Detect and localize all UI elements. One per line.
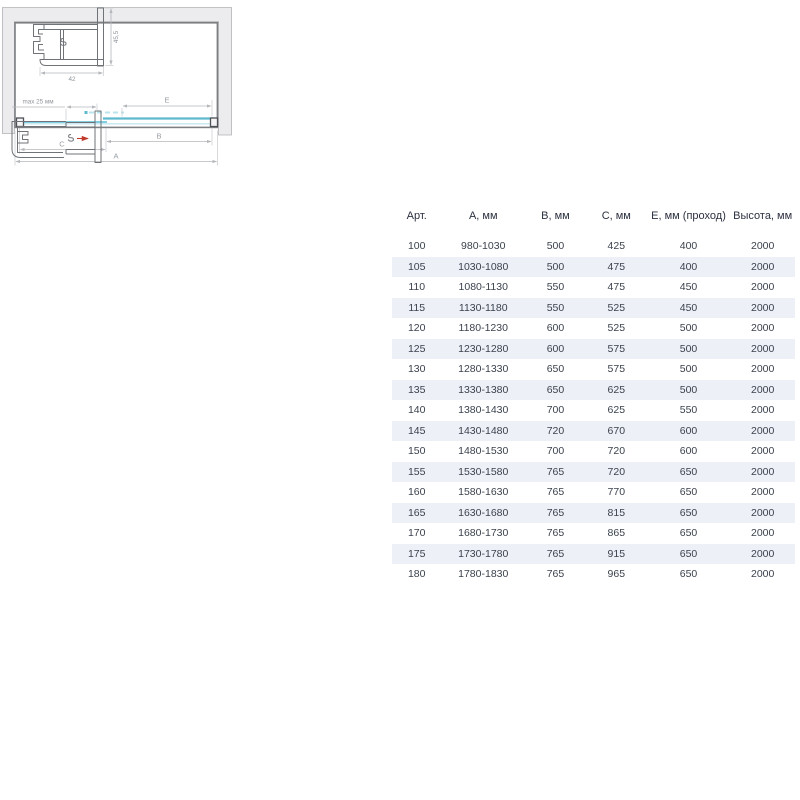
table-row: 1551530-15807657206502000 (392, 462, 795, 483)
table-row: 1401380-14307006255502000 (392, 400, 795, 421)
table-row: 1051030-10805004754002000 (392, 257, 795, 278)
table-cell: 500 (525, 257, 586, 278)
table-cell: 525 (586, 318, 647, 339)
table-cell: 2000 (730, 441, 795, 462)
table-cell: 2000 (730, 544, 795, 565)
dim-label-e: E (164, 96, 169, 105)
table-row: 1601580-16307657706502000 (392, 482, 795, 503)
table-cell: 1180-1230 (441, 318, 525, 339)
table-cell: 700 (525, 400, 586, 421)
table-cell: 425 (586, 236, 647, 257)
table-cell: 115 (392, 298, 441, 319)
table-cell: 1580-1630 (441, 482, 525, 503)
table-cell: 625 (586, 400, 647, 421)
table-cell: 2000 (730, 380, 795, 401)
spec-table: Арт.А, ммВ, ммС, ммЕ, мм (проход)Высота,… (392, 204, 795, 585)
profile-section-top: 42 45,5 (34, 8, 121, 83)
table-cell: 400 (647, 257, 731, 278)
table-cell: 2000 (730, 236, 795, 257)
table-cell: 165 (392, 503, 441, 524)
table-cell: 765 (525, 544, 586, 565)
table-cell: 100 (392, 236, 441, 257)
adjustment-label: max 25 мм (22, 99, 53, 106)
table-cell: 1130-1180 (441, 298, 525, 319)
table-cell: 500 (647, 339, 731, 360)
table-cell: 2000 (730, 400, 795, 421)
table-header-cell: Арт. (392, 204, 441, 236)
table-cell: 150 (392, 441, 441, 462)
table-cell: 1330-1380 (441, 380, 525, 401)
table-cell: 155 (392, 462, 441, 483)
table-cell: 550 (525, 298, 586, 319)
table-cell: 1730-1780 (441, 544, 525, 565)
table-cell: 2000 (730, 482, 795, 503)
spec-table-header: Арт.А, ммВ, ммС, ммЕ, мм (проход)Высота,… (392, 204, 795, 236)
table-header-row: Арт.А, ммВ, ммС, ммЕ, мм (проход)Высота,… (392, 204, 795, 236)
table-cell: 650 (647, 482, 731, 503)
table-cell: 2000 (730, 277, 795, 298)
table-cell: 2000 (730, 339, 795, 360)
table-cell: 110 (392, 277, 441, 298)
table-cell: 650 (647, 503, 731, 524)
table-cell: 965 (586, 564, 647, 585)
dim-label-b: B (156, 132, 161, 141)
table-cell: 1680-1730 (441, 523, 525, 544)
table-row: 1701680-17307658656502000 (392, 523, 795, 544)
profile-width-label: 42 (68, 76, 76, 83)
table-cell: 650 (647, 523, 731, 544)
page: E B C A (0, 0, 800, 800)
table-cell: 575 (586, 359, 647, 380)
table-row: 1751730-17807659156502000 (392, 544, 795, 565)
table-cell: 600 (525, 318, 586, 339)
table-cell: 650 (647, 462, 731, 483)
table-cell: 2000 (730, 359, 795, 380)
table-cell: 500 (647, 359, 731, 380)
table-cell: 865 (586, 523, 647, 544)
table-cell: 1080-1130 (441, 277, 525, 298)
table-cell: 765 (525, 523, 586, 544)
table-cell: 1530-1580 (441, 462, 525, 483)
table-cell: 2000 (730, 298, 795, 319)
table-cell: 500 (647, 380, 731, 401)
table-cell: 2000 (730, 257, 795, 278)
table-cell: 120 (392, 318, 441, 339)
table-cell: 1430-1480 (441, 421, 525, 442)
table-row: 1501480-15307007206002000 (392, 441, 795, 462)
table-cell: 770 (586, 482, 647, 503)
table-cell: 700 (525, 441, 586, 462)
table-cell: 500 (525, 236, 586, 257)
table-cell: 600 (647, 441, 731, 462)
table-cell: 980-1030 (441, 236, 525, 257)
table-cell: 400 (647, 236, 731, 257)
table-row: 1451430-14807206706002000 (392, 421, 795, 442)
profile-section-adjustment: max 25 мм (12, 99, 101, 163)
table-cell: 2000 (730, 523, 795, 544)
table-cell: 765 (525, 462, 586, 483)
table-cell: 915 (586, 544, 647, 565)
table-row: 1651630-16807658156502000 (392, 503, 795, 524)
table-row: 1201180-12306005255002000 (392, 318, 795, 339)
table-cell: 130 (392, 359, 441, 380)
table-cell: 720 (586, 462, 647, 483)
table-cell: 575 (586, 339, 647, 360)
spec-table-body: 100980-103050042540020001051030-10805004… (392, 236, 795, 585)
table-cell: 175 (392, 544, 441, 565)
table-cell: 1630-1680 (441, 503, 525, 524)
table-cell: 765 (525, 564, 586, 585)
table-cell: 1280-1330 (441, 359, 525, 380)
table-header-cell: С, мм (586, 204, 647, 236)
table-cell: 1230-1280 (441, 339, 525, 360)
table-cell: 650 (525, 359, 586, 380)
table-cell: 475 (586, 257, 647, 278)
table-cell: 650 (647, 564, 731, 585)
table-cell: 765 (525, 503, 586, 524)
profile-height-label: 45,5 (113, 30, 120, 43)
table-cell: 2000 (730, 421, 795, 442)
table-cell: 600 (525, 339, 586, 360)
table-cell: 170 (392, 523, 441, 544)
table-row: 100980-10305004254002000 (392, 236, 795, 257)
table-cell: 140 (392, 400, 441, 421)
table-cell: 180 (392, 564, 441, 585)
table-cell: 765 (525, 482, 586, 503)
table-cell: 650 (525, 380, 586, 401)
table-cell: 145 (392, 421, 441, 442)
table-cell: 650 (647, 544, 731, 565)
table-cell: 500 (647, 318, 731, 339)
table-row: 1801780-18307659656502000 (392, 564, 795, 585)
table-cell: 2000 (730, 462, 795, 483)
table-header-cell: Высота, мм (730, 204, 795, 236)
table-cell: 1780-1830 (441, 564, 525, 585)
table-header-cell: В, мм (525, 204, 586, 236)
table-cell: 720 (586, 441, 647, 462)
table-cell: 625 (586, 380, 647, 401)
table-cell: 1380-1430 (441, 400, 525, 421)
table-cell: 450 (647, 298, 731, 319)
table-row: 1351330-13806506255002000 (392, 380, 795, 401)
table-cell: 105 (392, 257, 441, 278)
profile-sections-drawing: 42 45,5 (0, 0, 140, 185)
table-header-cell: Е, мм (проход) (647, 204, 731, 236)
table-cell: 600 (647, 421, 731, 442)
table-cell: 450 (647, 277, 731, 298)
table-cell: 2000 (730, 318, 795, 339)
table-cell: 475 (586, 277, 647, 298)
table-cell: 550 (525, 277, 586, 298)
table-row: 1301280-13306505755002000 (392, 359, 795, 380)
table-cell: 1480-1530 (441, 441, 525, 462)
table-cell: 670 (586, 421, 647, 442)
table-cell: 160 (392, 482, 441, 503)
table-row: 1101080-11305504754502000 (392, 277, 795, 298)
table-cell: 525 (586, 298, 647, 319)
table-cell: 815 (586, 503, 647, 524)
table-cell: 550 (647, 400, 731, 421)
table-cell: 2000 (730, 564, 795, 585)
table-cell: 135 (392, 380, 441, 401)
table-header-cell: А, мм (441, 204, 525, 236)
table-cell: 1030-1080 (441, 257, 525, 278)
table-cell: 720 (525, 421, 586, 442)
wall-bracket-right (211, 118, 218, 127)
table-row: 1151130-11805505254502000 (392, 298, 795, 319)
table-cell: 125 (392, 339, 441, 360)
table-cell: 2000 (730, 503, 795, 524)
table-row: 1251230-12806005755002000 (392, 339, 795, 360)
